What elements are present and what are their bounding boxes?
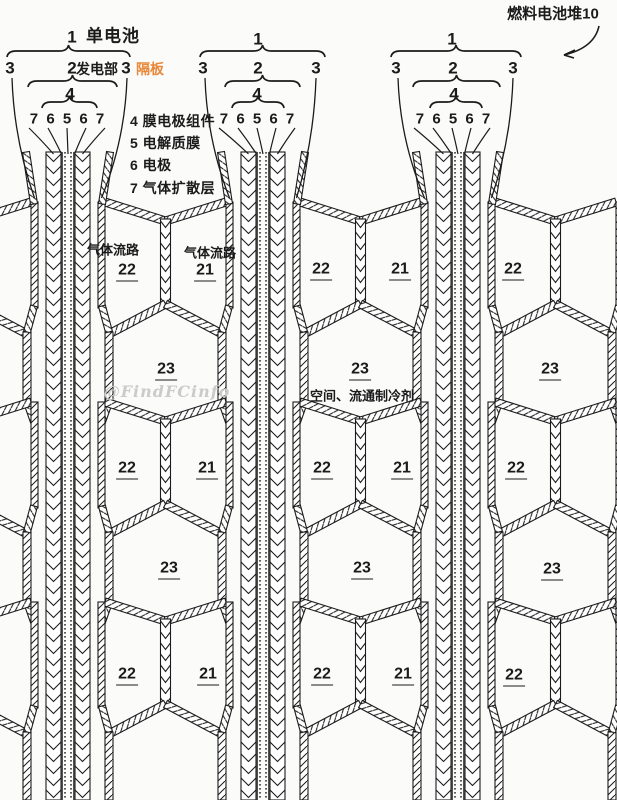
flow-path-label: 空间、流通制冷剂 bbox=[310, 390, 414, 403]
cell-number: 22 bbox=[116, 461, 138, 480]
ref-number: 3 bbox=[121, 60, 130, 77]
cell-number: 21 bbox=[196, 461, 218, 480]
cell-number: 23 bbox=[349, 362, 371, 381]
ref-number: 3 bbox=[311, 60, 320, 77]
cell-number: 22 bbox=[503, 668, 525, 687]
cell-number: 21 bbox=[392, 667, 414, 686]
cell-number: 23 bbox=[351, 561, 373, 580]
ref-number: 1 bbox=[67, 29, 76, 46]
cell-number: 21 bbox=[391, 461, 413, 480]
ref-number: 2 bbox=[253, 60, 262, 77]
flow-path-label: 气体流路 bbox=[184, 247, 236, 260]
stack-title: 燃料电池堆10 bbox=[507, 7, 599, 22]
ref-number: 3 bbox=[5, 60, 14, 77]
part-name: 单电池 bbox=[86, 28, 140, 45]
cell-number: 21 bbox=[194, 263, 216, 282]
separator-label: 隔板 bbox=[136, 62, 164, 76]
ref-number: 3 bbox=[391, 60, 400, 77]
legend-line: 5 电解质膜 bbox=[130, 136, 201, 150]
legend-line: 4 膜电极组件 bbox=[130, 114, 215, 128]
ref-number: 4 bbox=[65, 86, 74, 103]
ref-number: 1 bbox=[253, 31, 262, 48]
layer-digits: 7 6 5 6 7 bbox=[416, 112, 492, 127]
legend-line: 7 气体扩散层 bbox=[130, 181, 215, 195]
cell-number: 22 bbox=[505, 461, 527, 480]
cell-number: 23 bbox=[155, 362, 177, 381]
cell-number: 23 bbox=[541, 562, 563, 581]
legend-line: 6 电极 bbox=[130, 158, 172, 172]
cell-number: 22 bbox=[502, 262, 524, 281]
cell-number: 22 bbox=[311, 461, 333, 480]
ref-number: 1 bbox=[447, 31, 456, 48]
ref-number: 4 bbox=[449, 86, 458, 103]
ref-number: 3 bbox=[198, 60, 207, 77]
ref-number: 2 bbox=[448, 60, 457, 77]
cell-number: 22 bbox=[310, 262, 332, 281]
ref-number: 4 bbox=[252, 86, 261, 103]
part-name: 发电部 bbox=[76, 62, 118, 76]
layer-digits: 7 6 5 6 7 bbox=[30, 112, 106, 127]
ref-number: 3 bbox=[508, 60, 517, 77]
cell-number: 22 bbox=[116, 263, 138, 282]
cell-number: 21 bbox=[197, 667, 219, 686]
cell-number: 23 bbox=[539, 362, 561, 381]
cell-number: 22 bbox=[311, 667, 333, 686]
label-layer: 燃料电池堆101单电池32发电部3隔板47 6 5 6 7132347 6 5 … bbox=[0, 0, 617, 800]
layer-digits: 7 6 5 6 7 bbox=[220, 112, 296, 127]
patent-figure: 燃料电池堆101单电池32发电部3隔板47 6 5 6 7132347 6 5 … bbox=[0, 0, 617, 800]
flow-path-label: 气体流路 bbox=[87, 244, 139, 257]
watermark: @FindFCinfo bbox=[104, 384, 231, 400]
cell-number: 23 bbox=[158, 561, 180, 580]
cell-number: 22 bbox=[116, 667, 138, 686]
cell-number: 21 bbox=[389, 262, 411, 281]
